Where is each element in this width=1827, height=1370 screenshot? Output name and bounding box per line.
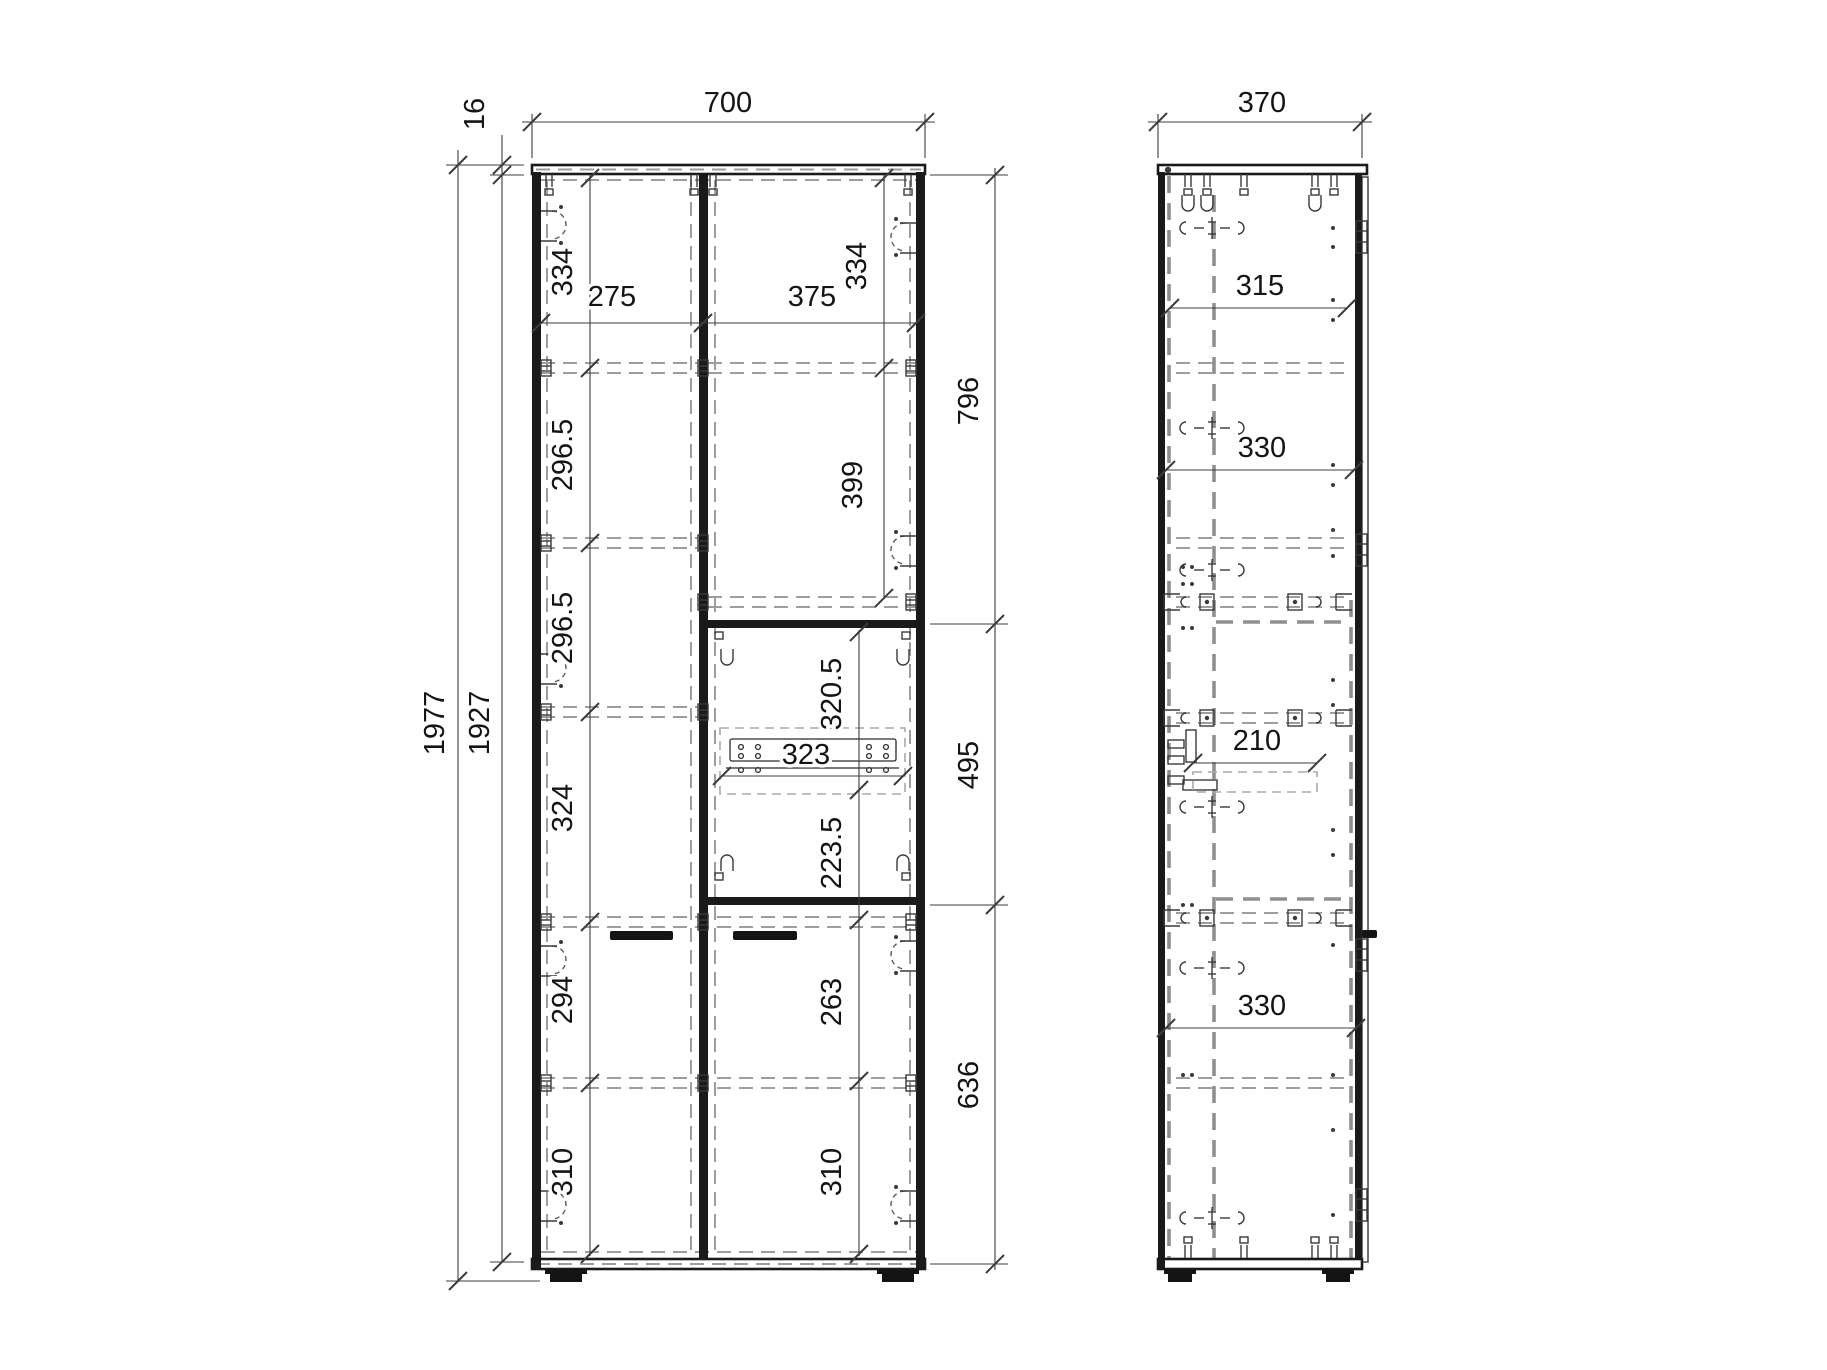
dim-front-overall-width: 700	[704, 87, 752, 119]
dim-right-section-3: 636	[953, 1061, 985, 1109]
dim-right-opening-width: 375	[788, 281, 836, 313]
niche-top-panel	[708, 620, 925, 628]
dim-left-spacing-1: 334	[547, 248, 579, 296]
dim-right-top-spacing: 334	[841, 242, 873, 290]
dim-left-spacing-2: 296.5	[547, 419, 579, 492]
dim-right-section-2: 495	[953, 741, 985, 789]
dim-side-lower-shelf-depth: 330	[1238, 990, 1286, 1022]
side-view: 370 315 330 210 330	[1148, 87, 1377, 1282]
dim-left-spacing-3: 296.5	[547, 592, 579, 665]
dim-niche-upper: 320.5	[816, 658, 848, 731]
drawing-sheet: 700 16 1927 1977 334 296.5 296.5 324	[0, 0, 1827, 1370]
front-hinges	[541, 205, 916, 1225]
dim-side-overall-depth: 370	[1238, 87, 1286, 119]
front-view: 700 16 1927 1977 334 296.5 296.5 324	[419, 87, 1008, 1290]
side-door-handle	[1362, 930, 1377, 938]
side-feet	[1164, 1269, 1354, 1282]
dim-side-upper-shelf-depth: 330	[1238, 432, 1286, 464]
dim-left-opening-width: 275	[588, 281, 636, 313]
front-hidden-lines	[541, 180, 916, 1252]
dim-side-top-depth: 315	[1236, 270, 1284, 302]
dim-niche-lower: 223.5	[816, 817, 848, 890]
dim-left-spacing-5: 294	[547, 976, 579, 1024]
dim-side-rail-depth: 210	[1233, 725, 1281, 757]
dim-rail-width: 323	[782, 739, 830, 771]
front-feet	[545, 1269, 919, 1282]
dim-left-spacing-4: 324	[547, 784, 579, 832]
dim-carcass-height: 1927	[464, 691, 496, 756]
side-dimensions: 370 315 330 210 330	[1148, 87, 1372, 1037]
dim-left-spacing-6: 310	[547, 1148, 579, 1196]
dim-right-section-1: 796	[953, 377, 985, 425]
side-hidden-lines	[1169, 176, 1351, 1258]
niche-bottom-panel	[708, 897, 925, 905]
dim-top-thickness: 16	[459, 98, 491, 130]
cabinet-technical-drawing: 700 16 1927 1977 334 296.5 296.5 324	[0, 0, 1827, 1370]
side-fittings	[1164, 174, 1352, 1258]
dim-total-height: 1977	[419, 691, 451, 756]
dim-right-upper-opening: 399	[837, 461, 869, 509]
door-overlay-edge	[1362, 177, 1368, 1262]
left-door-handle	[610, 931, 673, 940]
dim-right-lower-opening: 263	[816, 978, 848, 1026]
dim-right-bottom-spacing: 310	[816, 1148, 848, 1196]
right-door-handle	[733, 931, 797, 940]
